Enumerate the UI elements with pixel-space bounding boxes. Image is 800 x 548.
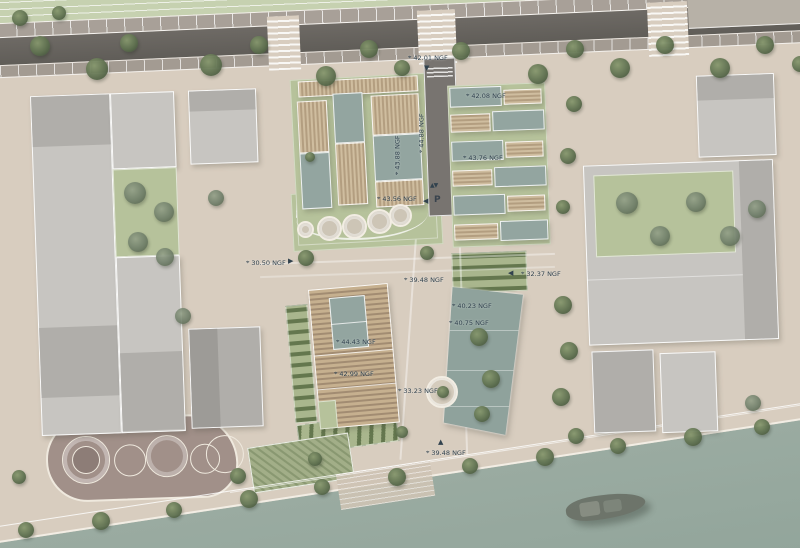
tree (566, 40, 584, 58)
tree (710, 58, 730, 78)
site-plan-canvas: ⌖ 42.01 NGF ▼ ⌖ 42.08 NGF ⌖ 43.76 NGF ⌖ … (0, 0, 800, 548)
round-pavilion (297, 221, 314, 238)
tree (52, 6, 66, 20)
level-symbol-icon: ⌖ (395, 172, 401, 175)
parking-arrow-icon: ◀ (423, 198, 428, 205)
level-label: ⌖ 40.23 NGF (452, 303, 492, 310)
context-building-wing (120, 351, 185, 431)
tree (394, 60, 410, 76)
main-building-group (304, 278, 409, 435)
level-label: ⌖ 33.23 NGF (398, 388, 438, 395)
tree (745, 395, 761, 411)
tree (12, 10, 28, 26)
context-building-wing (39, 325, 119, 398)
context-building (110, 91, 177, 169)
level-label: ⌖ 44.88 NGF (419, 113, 426, 153)
level-arrow-up-icon: ▲ (438, 439, 443, 446)
tree (230, 468, 246, 484)
tree (556, 200, 570, 214)
tree (610, 58, 630, 78)
tree (240, 490, 258, 508)
play-circle (114, 444, 147, 477)
tree (554, 296, 572, 314)
level-symbol-icon: ⌖ (521, 271, 524, 277)
tree (616, 192, 638, 214)
tree (720, 226, 740, 246)
tree (128, 232, 148, 252)
tree (560, 342, 578, 360)
tree (314, 479, 330, 495)
level-symbol-icon: ⌖ (419, 150, 425, 153)
tree (552, 388, 570, 406)
tree (86, 58, 108, 80)
level-label: ⌖ 42.99 NGF (334, 371, 374, 378)
housing-row-flat (494, 165, 547, 187)
tree (250, 36, 268, 54)
tree (452, 42, 470, 60)
tree (437, 386, 449, 398)
housing-row-flat (500, 219, 549, 241)
level-symbol-icon: ⌖ (398, 388, 401, 394)
tree (316, 66, 336, 86)
level-symbol-icon: ⌖ (377, 196, 380, 202)
tree (470, 328, 488, 346)
level-label: ⌖ 30.50 NGF (246, 260, 286, 267)
housing-row-flat (492, 109, 545, 131)
level-symbol-icon: ⌖ (408, 55, 411, 61)
context-building-wing (31, 94, 111, 147)
tree (560, 148, 576, 164)
tree (388, 468, 406, 486)
tree (120, 34, 138, 52)
level-symbol-icon: ⌖ (463, 155, 466, 161)
level-symbol-icon: ⌖ (334, 371, 337, 377)
crosswalk (267, 15, 301, 70)
tree (748, 200, 766, 218)
tree (650, 226, 670, 246)
level-label: ⌖ 42.08 NGF (466, 93, 506, 100)
level-label: ⌖ 43.88 NGF (395, 135, 402, 175)
context-building-wing (697, 74, 774, 101)
housing-row-flat (332, 92, 365, 144)
tree (756, 36, 774, 54)
level-label: ⌖ 40.75 NGF (449, 320, 489, 327)
tree (92, 512, 110, 530)
level-symbol-icon: ⌖ (336, 339, 339, 345)
housing-row-roof (371, 93, 421, 135)
tree (156, 248, 174, 266)
housing-row-roof (503, 89, 542, 105)
round-pavilion (389, 204, 412, 227)
context-block-west (22, 80, 284, 451)
tree (568, 428, 584, 444)
housing-row-roof (505, 140, 544, 157)
round-pavilion (342, 214, 367, 239)
tree (754, 419, 770, 435)
tree (305, 152, 315, 162)
context-building (591, 349, 656, 433)
context-building-wing (739, 160, 778, 339)
level-label: ⌖ 32.37 NGF (521, 271, 561, 278)
housing-row-roof (454, 223, 499, 241)
tree (420, 246, 434, 260)
level-label: ⌖ 43.56 NGF (377, 196, 417, 203)
level-symbol-icon: ⌖ (449, 320, 452, 326)
context-block-east (570, 60, 800, 444)
level-arrow-down-icon: ▼ (424, 65, 429, 72)
boat-deck (603, 499, 622, 513)
tree (474, 406, 490, 422)
housing-block-east (447, 82, 553, 250)
housing-row-roof (507, 194, 546, 211)
roof-garden-notch (318, 400, 338, 429)
tree (610, 438, 626, 454)
housing-row-roof (450, 113, 491, 132)
tree (154, 202, 174, 222)
tree (566, 96, 582, 112)
boat-cabin (579, 501, 601, 518)
level-label: ⌖ 39.48 NGF (404, 277, 444, 284)
tree (208, 190, 224, 206)
level-label: ⌖ 44.43 NGF (336, 339, 376, 346)
level-symbol-icon: ⌖ (404, 277, 407, 283)
ramp-direction-arrows-icon: ▲▼ (430, 183, 437, 189)
level-symbol-icon: ⌖ (426, 450, 429, 456)
tree (656, 36, 674, 54)
tree (124, 182, 146, 204)
tree (528, 64, 548, 84)
tree (482, 370, 500, 388)
level-symbol-icon: ⌖ (466, 93, 469, 99)
tree (166, 502, 182, 518)
parking-icon: P (434, 196, 441, 205)
level-symbol-icon: ⌖ (452, 303, 455, 309)
context-building-wing (189, 329, 220, 428)
tree (684, 428, 702, 446)
tree (308, 452, 322, 466)
round-pavilion (317, 216, 342, 241)
street-corner-northeast (687, 0, 800, 29)
tree (462, 458, 478, 474)
tree (12, 470, 26, 484)
housing-row-roof (297, 100, 330, 153)
level-label: ⌖ 42.01 NGF (408, 55, 448, 62)
tree (30, 36, 50, 56)
level-symbol-icon: ⌖ (246, 260, 249, 266)
tree (175, 308, 191, 324)
level-label: ⌖ 43.76 NGF (463, 155, 503, 162)
tree (536, 448, 554, 466)
level-label: ⌖ 39.48 NGF (426, 450, 466, 457)
tree (200, 54, 222, 76)
tree (298, 250, 314, 266)
tree (686, 192, 706, 212)
tree (360, 40, 378, 58)
level-arrow-left-icon: ◀ (508, 270, 513, 277)
housing-row-flat (453, 194, 506, 216)
tree (396, 426, 408, 438)
tree (18, 522, 34, 538)
context-building (660, 351, 719, 433)
housing-row-roof (452, 169, 493, 186)
context-building-wing (189, 89, 256, 111)
level-arrow-right-icon: ▶ (288, 258, 293, 265)
